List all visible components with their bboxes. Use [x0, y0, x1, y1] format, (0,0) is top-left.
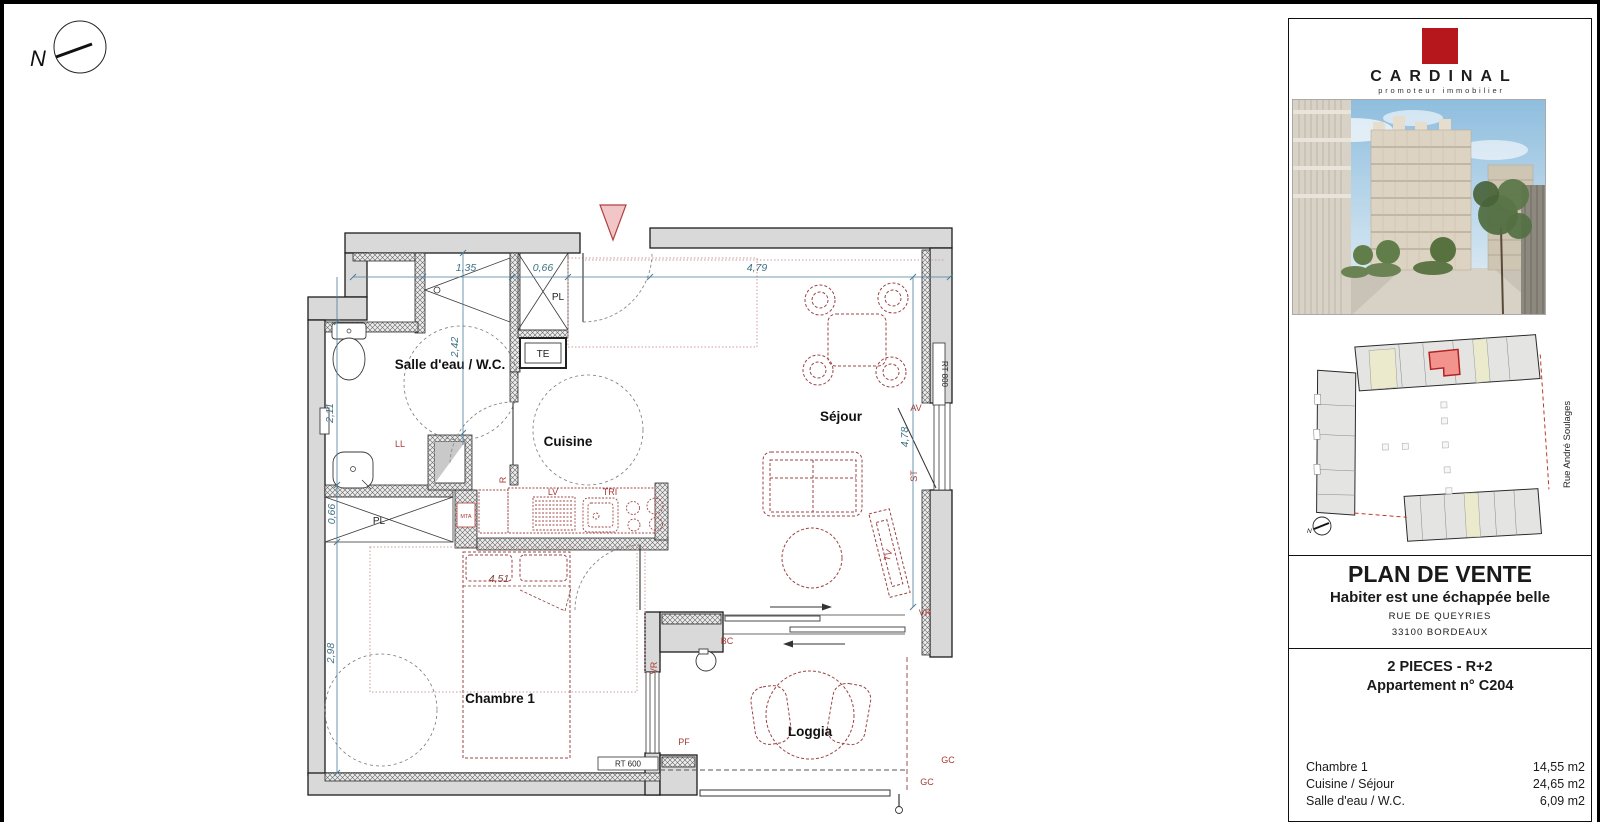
- bedroom-french-window: [646, 672, 659, 753]
- brand-tagline: promoteur immobilier: [1288, 86, 1592, 95]
- electrical-box-te: TE: [520, 338, 566, 368]
- lv-label: LV: [548, 487, 558, 497]
- vr-living-label: VR: [919, 608, 932, 618]
- dishwasher: [533, 497, 575, 530]
- dim-478: 4,78: [899, 427, 911, 448]
- cardinal-logo: CARDINAL promoteur immobilier: [1288, 28, 1592, 95]
- fridge-label: R: [498, 476, 508, 483]
- entrance-door: [583, 253, 652, 322]
- bedroom-closet: PL: [325, 497, 453, 542]
- dim-211: 2,11: [324, 403, 336, 424]
- tri-label: TRI: [603, 487, 618, 497]
- sheet-title: PLAN DE VENTE: [1288, 561, 1592, 588]
- sliding-bay-door: [723, 604, 905, 648]
- bedroom-pl-label: PL: [373, 516, 386, 527]
- divider-unit: [1288, 648, 1592, 649]
- av-label: AV: [910, 403, 921, 413]
- siteplan-compass: N: [1307, 517, 1331, 535]
- dim-479: 4,79: [747, 262, 768, 274]
- brand-name: CARDINAL: [1288, 68, 1592, 86]
- rt600-radiator: RT 600: [598, 757, 658, 770]
- dim-242: 2,42: [449, 337, 461, 359]
- te-label: TE: [537, 349, 550, 360]
- entrance-arrow-marker: [600, 205, 626, 240]
- area-room: Salle d'eau / W.C.: [1306, 794, 1405, 808]
- compass-needle: [56, 44, 92, 57]
- compass-n-label: N: [30, 46, 46, 71]
- bedroom-door: [575, 545, 640, 610]
- loggia-label: Loggia: [788, 724, 833, 739]
- divider-title: [1288, 555, 1592, 556]
- sheet-subtitle: Habiter est une échappée belle: [1288, 589, 1592, 606]
- dining-set: [803, 283, 908, 387]
- rt800-label: RT 800: [940, 361, 949, 387]
- left-building: [1293, 100, 1351, 314]
- kitchen-sink: [583, 498, 618, 532]
- area-row: Salle d'eau / W.C. 6,09 m2: [1306, 794, 1585, 808]
- kitchen-counter: LV TRI R: [479, 476, 663, 533]
- address-line1: RUE DE QUEYRIES: [1288, 611, 1592, 622]
- rt600-label: RT 600: [615, 760, 641, 769]
- kitchen-label: Cuisine: [544, 434, 593, 449]
- area-room: Cuisine / Séjour: [1306, 777, 1394, 791]
- dim-298: 2,98: [325, 643, 337, 665]
- unit-name: Appartement n° C204: [1288, 678, 1592, 694]
- st-label: ST: [909, 470, 919, 482]
- mta-label: MTA: [460, 514, 472, 520]
- bedroom-label: Chambre 1: [465, 691, 535, 706]
- loggia-table-set: [749, 671, 873, 759]
- area-row: Cuisine / Séjour 24,65 m2: [1306, 777, 1585, 791]
- gc-side-label: GC: [941, 755, 955, 765]
- coffee-table: [782, 528, 842, 588]
- address-line2: 33100 BORDEAUX: [1288, 627, 1592, 638]
- bc-label: BC: [721, 636, 734, 646]
- dim-451: 4,51: [489, 573, 509, 585]
- dim-066-entry: 0,66: [533, 262, 554, 274]
- ll-label: LL: [395, 439, 405, 449]
- street-name-label: Rue André Soulages: [1562, 401, 1573, 488]
- closet-pl-label: PL: [552, 292, 565, 303]
- bathroom-label: Salle d'eau / W.C.: [395, 357, 506, 372]
- living-label: Séjour: [820, 409, 863, 424]
- sofa: [763, 452, 862, 516]
- area-row: Chambre 1 14,55 m2: [1306, 760, 1585, 774]
- bed: [463, 552, 570, 758]
- railing: [700, 790, 890, 796]
- pf-label: PF: [678, 737, 690, 747]
- area-room: Chambre 1: [1306, 760, 1368, 774]
- site-key-plan: Rue André Soulages N: [1296, 330, 1588, 542]
- area-value: 24,65 m2: [1533, 777, 1585, 791]
- cardinal-logo-square: [1422, 28, 1458, 64]
- dim-135: 1,35: [456, 262, 477, 274]
- unit-type: 2 PIECES - R+2: [1288, 659, 1592, 675]
- area-value: 14,55 m2: [1533, 760, 1585, 774]
- siteplan-compass-n: N: [1307, 528, 1312, 535]
- north-compass: N: [30, 21, 106, 73]
- tv-label: TV: [882, 548, 895, 562]
- building-rendering: [1292, 99, 1546, 315]
- dim-066-closet: 0,66: [326, 504, 338, 525]
- interior-partitions: [325, 253, 668, 550]
- plan-de-vente-sheet: N: [0, 0, 1600, 822]
- vr-bedroom-label: VR: [649, 661, 659, 674]
- outer-walls: [308, 228, 952, 795]
- gc-bottom-label: GC: [920, 777, 934, 787]
- area-value: 6,09 m2: [1540, 794, 1585, 808]
- mta-box: MTA: [457, 503, 475, 527]
